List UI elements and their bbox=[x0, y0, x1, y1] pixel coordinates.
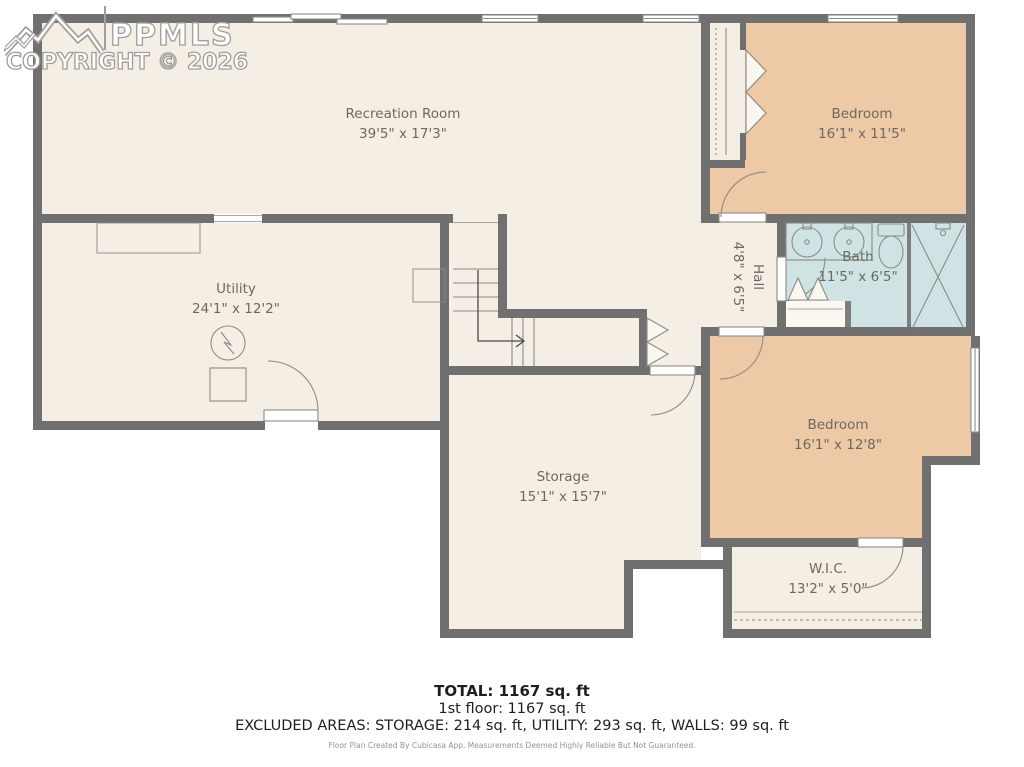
door-leaf bbox=[858, 538, 903, 547]
room-dims: 11'5" x 6'5" bbox=[778, 268, 938, 288]
room-name: Recreation Room bbox=[346, 106, 461, 122]
room-dims: 15'1" x 15'7" bbox=[483, 488, 643, 508]
staircase bbox=[453, 269, 534, 366]
room-label-recreation: Recreation Room 39'5" x 17'3" bbox=[303, 105, 503, 144]
room-dims: 13'2" x 5'0" bbox=[748, 580, 908, 600]
room-name: Utility bbox=[216, 281, 256, 297]
watermark: PPMLS COPYRIGHT © 2026 bbox=[4, 6, 224, 60]
bifold-doors-understair-closet bbox=[647, 318, 668, 366]
room-name: Bedroom bbox=[807, 417, 868, 433]
utility-closet-outline bbox=[97, 223, 200, 253]
room-name: Bedroom bbox=[831, 106, 892, 122]
door-arc-bedroom1 bbox=[721, 172, 766, 217]
room-label-storage: Storage 15'1" x 15'7" bbox=[483, 468, 643, 507]
room-name: Storage bbox=[537, 469, 590, 485]
room-name: W.I.C. bbox=[809, 561, 847, 577]
watermark-divider bbox=[104, 6, 106, 50]
room-dims: 4'8" x 6'5" bbox=[728, 231, 748, 323]
door-arc-storage bbox=[651, 371, 695, 415]
door-arc-utility bbox=[268, 361, 318, 411]
total-area-text: TOTAL: 1167 sq. ft bbox=[0, 682, 1024, 700]
floor-plan-page: Recreation Room 39'5" x 17'3" Bedroom 16… bbox=[0, 0, 1024, 767]
furnace-icon bbox=[210, 368, 246, 401]
room-label-hall: Hall 4'8" x 6'5" bbox=[727, 231, 767, 323]
mountain-peaks-icon bbox=[4, 6, 104, 56]
door-arc-bedroom2 bbox=[720, 336, 763, 379]
room-label-utility: Utility 24'1" x 12'2" bbox=[156, 280, 316, 319]
bifold-doors-bedroom1-closet bbox=[746, 50, 766, 134]
room-dims: 39'5" x 17'3" bbox=[303, 125, 503, 145]
room-name: Hall bbox=[750, 264, 766, 290]
window bbox=[253, 17, 293, 22]
door-leaf bbox=[264, 410, 318, 421]
utility-cabinet-outline bbox=[413, 269, 445, 302]
room-label-bath: Bath 11'5" x 6'5" bbox=[778, 248, 938, 287]
stairs-direction-arrow bbox=[478, 270, 524, 347]
disclaimer-text: Floor Plan Created By Cubicasa App. Meas… bbox=[0, 741, 1024, 750]
room-dims: 16'1" x 12'8" bbox=[758, 436, 918, 456]
door-leaf bbox=[719, 327, 764, 336]
door-leaf bbox=[719, 213, 766, 222]
area-summary: TOTAL: 1167 sq. ft 1st floor: 1167 sq. f… bbox=[0, 682, 1024, 734]
room-name: Bath bbox=[842, 249, 873, 265]
room-label-bedroom1: Bedroom 16'1" x 11'5" bbox=[782, 105, 942, 144]
door-leaf bbox=[650, 366, 695, 375]
sliding-window-panel bbox=[291, 14, 341, 19]
room-label-wic: W.I.C. 13'2" x 5'0" bbox=[748, 560, 908, 599]
room-label-bedroom2: Bedroom 16'1" x 12'8" bbox=[758, 416, 918, 455]
watermark-brand: PPMLS bbox=[110, 18, 235, 53]
room-dims: 16'1" x 11'5" bbox=[782, 125, 942, 145]
sliding-window-panel bbox=[337, 19, 387, 24]
room-dims: 24'1" x 12'2" bbox=[156, 300, 316, 320]
excluded-areas-text: EXCLUDED AREAS: STORAGE: 214 sq. ft, UTI… bbox=[0, 718, 1024, 734]
watermark-copyright: COPYRIGHT © 2026 bbox=[6, 50, 248, 75]
water-heater-icon bbox=[211, 326, 245, 360]
floor-area-text: 1st floor: 1167 sq. ft bbox=[0, 701, 1024, 717]
